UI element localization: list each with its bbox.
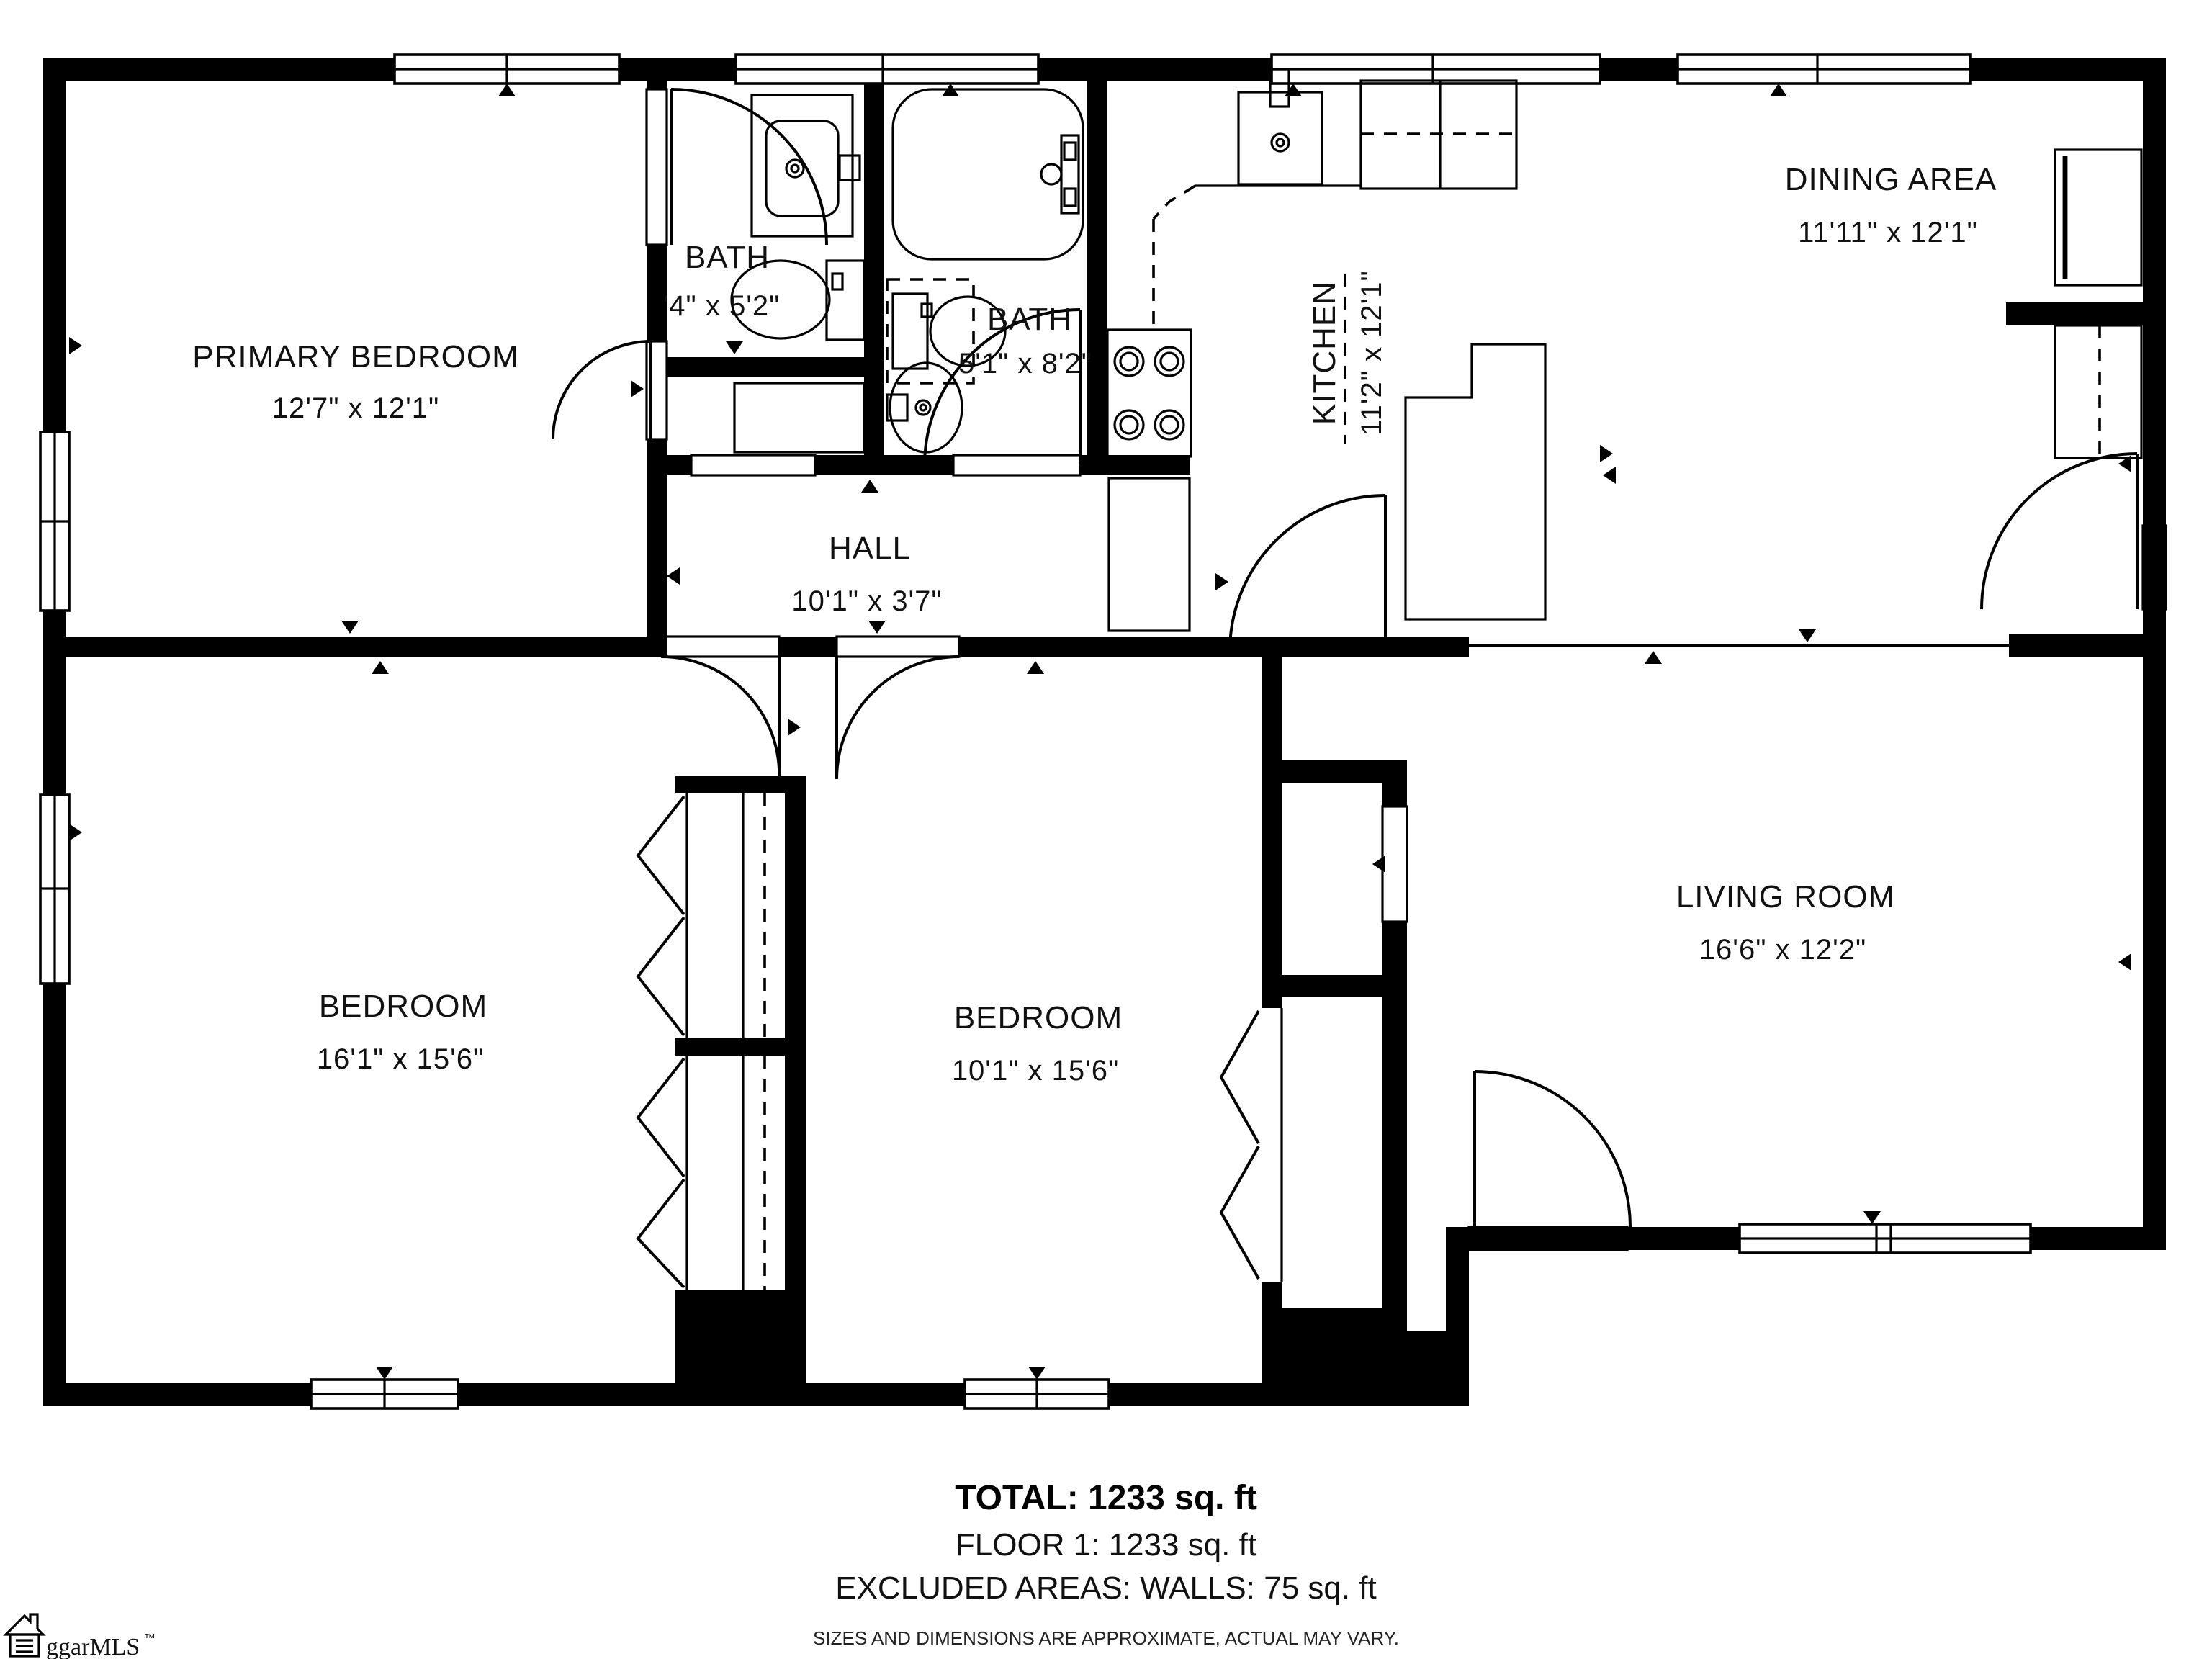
window-bottom-bedroom-left — [311, 1380, 458, 1408]
bedroom-middle-dims: 10'1" x 15'6" — [952, 1055, 1119, 1087]
bathtub-icon — [893, 89, 1083, 259]
utility-door-opening — [1382, 806, 1407, 922]
excluded-area-text: EXCLUDED AREAS: WALLS: 75 sq. ft — [835, 1570, 1377, 1606]
entry-door-swing — [1982, 454, 2137, 609]
window-bottom-bedroom-middle — [965, 1380, 1109, 1408]
hall-label: HALL — [829, 531, 911, 566]
logo-text: ggarMLS — [46, 1634, 140, 1659]
floor-plan-drawing: PRIMARY BEDROOM 12'7" x 12'1" BATH '4" x… — [0, 0, 2212, 1659]
walls — [43, 58, 2166, 1406]
linen-closet-opening — [691, 455, 815, 475]
bedroom-left-door-opening — [662, 637, 779, 657]
disclaimer-text: SIZES AND DIMENSIONS ARE APPROXIMATE, AC… — [813, 1627, 1399, 1649]
bath2-label: BATH — [987, 302, 1072, 337]
pantry-closet — [2055, 325, 2141, 458]
mls-logo: ggarMLS ™ — [6, 1614, 156, 1659]
house-icon — [6, 1614, 43, 1656]
bath2-door-opening — [953, 455, 1080, 475]
kitchen-label: KITCHEN — [1307, 281, 1342, 425]
hall-passage-door-swing — [1230, 495, 1385, 651]
bifold-doors-icon — [1221, 1011, 1259, 1279]
dining-dims: 11'11" x 12'1" — [1798, 217, 1978, 248]
bath2-fixtures — [887, 89, 1083, 452]
bath1-door-opening — [647, 89, 667, 245]
pedestal-sink-icon — [887, 363, 962, 452]
bath1-label: BATH — [685, 240, 770, 275]
kitchen-sink-icon — [1238, 69, 1322, 184]
stove-icon — [1107, 330, 1191, 457]
kitchen-island — [1406, 344, 1545, 619]
primary-bedroom-label: PRIMARY BEDROOM — [192, 339, 518, 374]
windows — [40, 55, 2031, 1408]
window-top-primary — [395, 55, 619, 84]
bath1-dims: '4" x 5'2" — [663, 290, 781, 322]
window-left-bedroom — [40, 795, 69, 984]
floor-area-text: FLOOR 1: 1233 sq. ft — [956, 1527, 1256, 1563]
bedroom-middle-closet — [1221, 1008, 1282, 1282]
bedroom-middle-label: BEDROOM — [954, 1000, 1123, 1035]
bedroom-middle-door-swing — [837, 657, 959, 779]
bedroom-middle-door-opening — [837, 637, 959, 657]
window-top-bath2 — [736, 55, 1038, 84]
window-top-kitchen — [1272, 55, 1600, 84]
window-bottom-living — [1740, 1224, 2031, 1253]
window-left-primary — [40, 432, 69, 611]
kitchen-dims: 11'2" x 12'1" — [1356, 270, 1388, 435]
bedroom-left-dims: 16'1" x 15'6" — [317, 1043, 484, 1075]
logo-trademark: ™ — [144, 1632, 156, 1645]
summary-block: TOTAL: 1233 sq. ft FLOOR 1: 1233 sq. ft … — [813, 1479, 1399, 1649]
bedroom-left-door-swing — [661, 657, 779, 781]
living-exterior-door-swing — [1475, 1071, 1630, 1227]
window-top-dining — [1678, 55, 1970, 84]
hall-dims: 10'1" x 3'7" — [791, 585, 942, 617]
bath2-dims: 5'1" x 8'2" — [958, 348, 1092, 379]
primary-bedroom-dims: 12'7" x 12'1" — [272, 392, 439, 424]
floor-plan-page: PRIMARY BEDROOM 12'7" x 12'1" BATH '4" x… — [0, 0, 2212, 1659]
total-area-text: TOTAL: 1233 sq. ft — [955, 1479, 1257, 1517]
linen-shelf — [734, 383, 864, 452]
bedroom-left-label: BEDROOM — [319, 989, 487, 1024]
fridge-icon — [2055, 150, 2141, 285]
dining-label: DINING AREA — [1785, 162, 1997, 197]
living-room-label: LIVING ROOM — [1676, 879, 1895, 914]
living-room-dims: 16'6" x 12'2" — [1699, 934, 1866, 966]
